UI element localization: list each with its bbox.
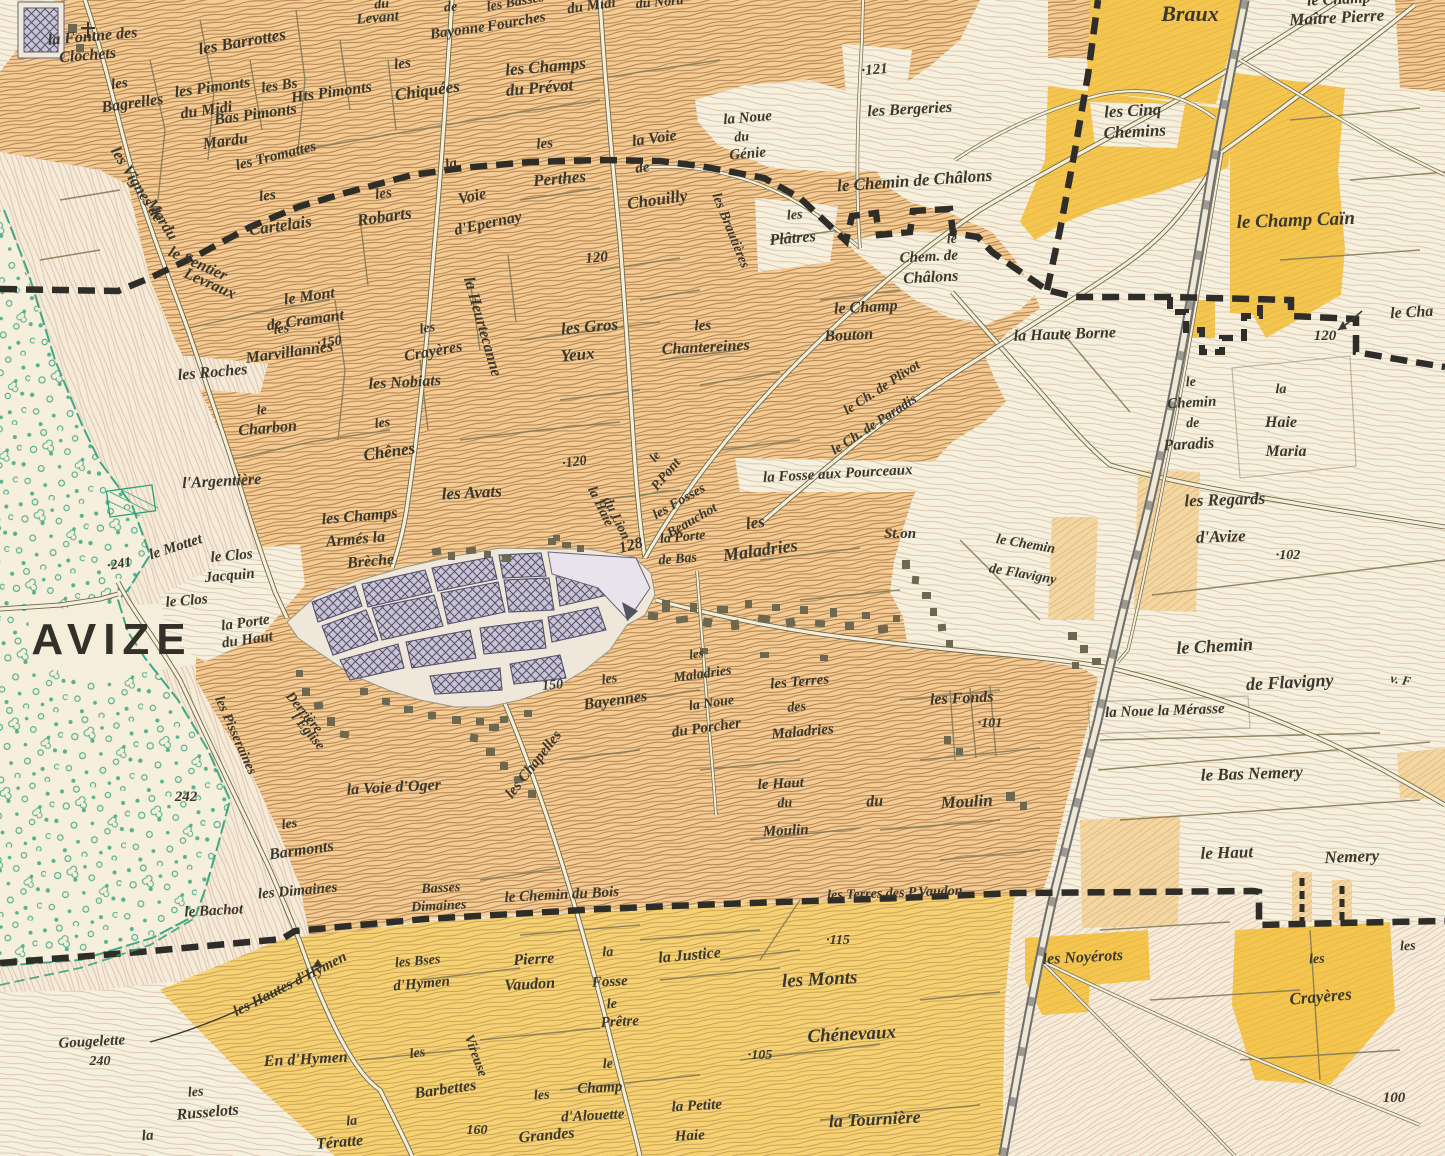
svg-text:Moulin: Moulin [939,791,993,813]
svg-text:le Haut: le Haut [1200,842,1254,863]
svg-text:les: les [694,318,712,335]
svg-text:Moulin: Moulin [761,822,809,840]
svg-text:de: de [443,0,457,16]
svg-text:le Bachot: le Bachot [184,901,244,920]
svg-text:le: le [946,232,957,248]
svg-text:Champ: Champ [577,1079,623,1097]
svg-text:de: de [1186,416,1200,432]
svg-text:la: la [1276,382,1287,397]
svg-text:Fosse: Fosse [590,973,628,991]
svg-text:d'Avize: d'Avize [1196,526,1247,547]
svg-text:Génie: Génie [729,144,767,163]
svg-text:·121: ·121 [861,61,889,79]
svg-text:les: les [374,415,392,432]
svg-text:la Petite: la Petite [671,1097,723,1116]
svg-text:les Avats: les Avats [441,481,502,503]
svg-text:·105: ·105 [748,1048,773,1063]
svg-text:120: 120 [585,249,609,267]
svg-text:les: les [418,320,436,338]
svg-text:les: les [745,512,767,533]
svg-text:les: les [374,185,393,203]
svg-text:les: les [688,645,704,662]
svg-text:des: des [787,699,807,716]
svg-text:Châlons: Châlons [903,268,959,288]
svg-text:Haie: Haie [673,1127,705,1145]
svg-text:les: les [281,816,299,833]
svg-text:de: de [634,159,651,177]
svg-text:150: 150 [542,677,564,694]
svg-text:la: la [141,1127,155,1144]
svg-text:Chemins: Chemins [1103,120,1167,142]
svg-text:les: les [533,1087,550,1103]
svg-text:les Cinq: les Cinq [1104,99,1163,121]
svg-text:100: 100 [1383,1090,1406,1106]
svg-text:du: du [777,796,793,812]
svg-text:les: les [258,187,277,205]
svg-text:Haie: Haie [1264,414,1297,431]
svg-text:les: les [536,135,554,152]
svg-text:Pierre: Pierre [512,950,555,969]
svg-text:Chemin: Chemin [1167,394,1217,413]
svg-text:Yeux: Yeux [560,344,596,366]
svg-text:les: les [1400,939,1417,955]
svg-text:160: 160 [467,1123,488,1138]
svg-text:·102: ·102 [1276,548,1301,563]
svg-text:240: 240 [89,1054,111,1069]
svg-text:le Haut: le Haut [757,775,805,793]
svg-text:les: les [786,207,803,223]
svg-text:AVIZE: AVIZE [31,615,192,664]
svg-text:la: la [602,945,614,961]
svg-text:le: le [1185,375,1196,391]
svg-text:les: les [110,75,129,93]
svg-text:les: les [187,1084,204,1100]
svg-text:le: le [256,403,267,419]
svg-text:d'Alouette: d'Alouette [561,1106,625,1125]
svg-text:du: du [734,129,750,145]
svg-text:la Haute Borne: la Haute Borne [1013,324,1116,345]
svg-text:les Regards: les Regards [1184,489,1266,511]
svg-text:les: les [409,1045,427,1062]
svg-text:les: les [393,55,412,73]
svg-text:les: les [273,321,291,338]
svg-text:120: 120 [1314,328,1337,344]
svg-text:les Fonds: les Fonds [930,688,994,708]
svg-text:la: la [346,1114,358,1130]
svg-text:le Chemin: le Chemin [1176,634,1253,658]
svg-text:Chem. de: Chem. de [899,247,958,266]
svg-text:St.on: St.on [884,526,916,542]
svg-text:Prêtre: Prêtre [600,1013,639,1031]
svg-text:·101: ·101 [978,716,1003,731]
svg-text:Maria: Maria [1265,443,1307,460]
svg-text:le Cha: le Cha [1390,303,1434,322]
svg-text:le Champ Caïn: le Champ Caïn [1236,208,1355,233]
svg-text:du: du [866,793,884,811]
svg-text:Basses: Basses [420,880,461,897]
svg-text:Vaudon: Vaudon [504,975,556,995]
svg-text:Nemery: Nemery [1323,846,1380,867]
svg-text:le Bas Nemery: le Bas Nemery [1201,762,1304,785]
svg-text:les: les [601,671,619,688]
svg-text:Dimaines: Dimaines [410,898,467,916]
svg-text:·115: ·115 [826,933,850,948]
svg-text:les: les [1309,952,1326,968]
svg-text:Bouton: Bouton [823,326,874,346]
svg-text:Braux: Braux [1160,1,1218,26]
svg-text:Paradis: Paradis [1162,435,1214,455]
svg-text:242: 242 [174,789,198,805]
svg-text:le: le [602,1057,613,1073]
svg-text:le Champ: le Champ [834,297,898,317]
svg-text:le: le [606,997,617,1013]
svg-text:les Monts: les Monts [781,967,857,992]
